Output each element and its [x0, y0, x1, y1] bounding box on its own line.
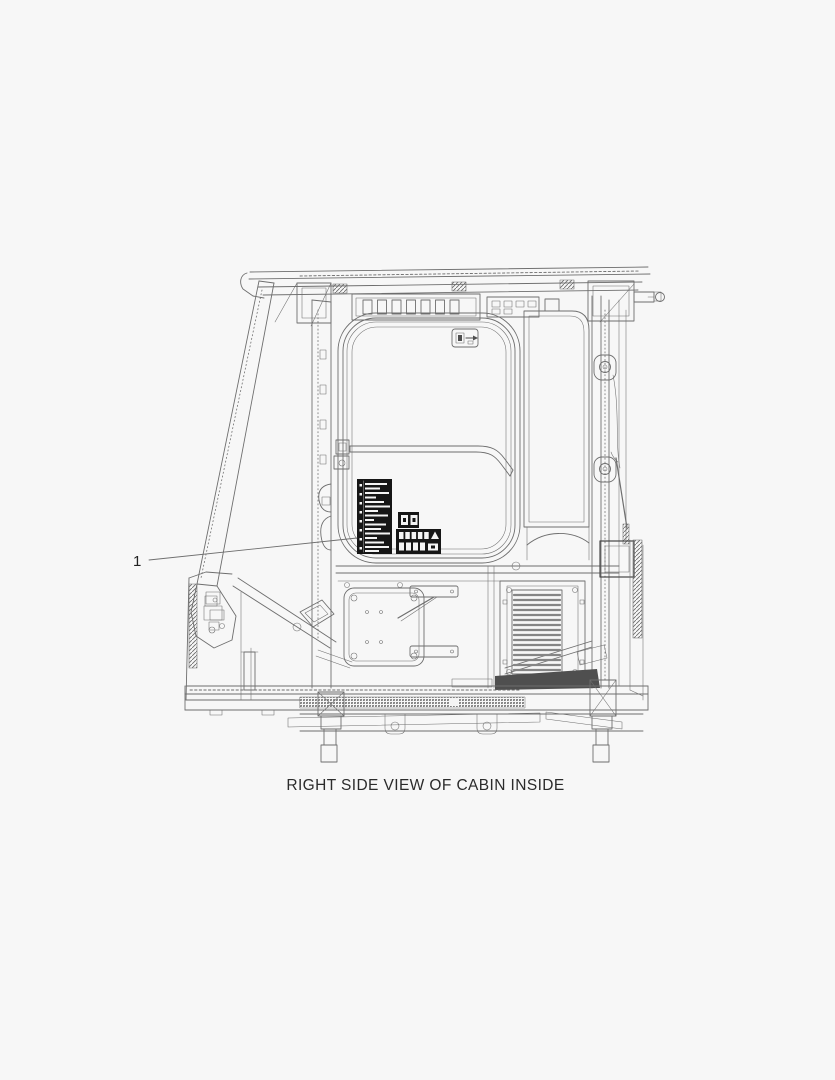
figure-caption: RIGHT SIDE VIEW OF CABIN INSIDE — [8, 777, 835, 795]
warning-decal-main — [357, 479, 392, 554]
front-console — [186, 572, 352, 700]
center-pillar — [312, 300, 331, 688]
warning-decal-group — [357, 479, 441, 554]
warning-decal-wide — [396, 529, 441, 554]
vent-grille — [488, 566, 600, 690]
cabin-line-art: 1 — [0, 0, 835, 835]
warning-decal-small — [398, 512, 419, 528]
callout-1: 1 — [133, 538, 357, 570]
base-frame — [185, 680, 648, 762]
callout-1-leader-line — [149, 538, 357, 560]
mounting-foot-right — [546, 680, 622, 762]
callout-1-label: 1 — [133, 553, 141, 570]
door-latch-icon — [452, 329, 478, 347]
rear-pillar — [592, 296, 643, 700]
window-divider — [334, 440, 513, 476]
door-lower-panel — [336, 566, 619, 687]
figure-page: 1 RIGHT SIDE VIEW OF CABIN INSIDE — [0, 0, 835, 1080]
